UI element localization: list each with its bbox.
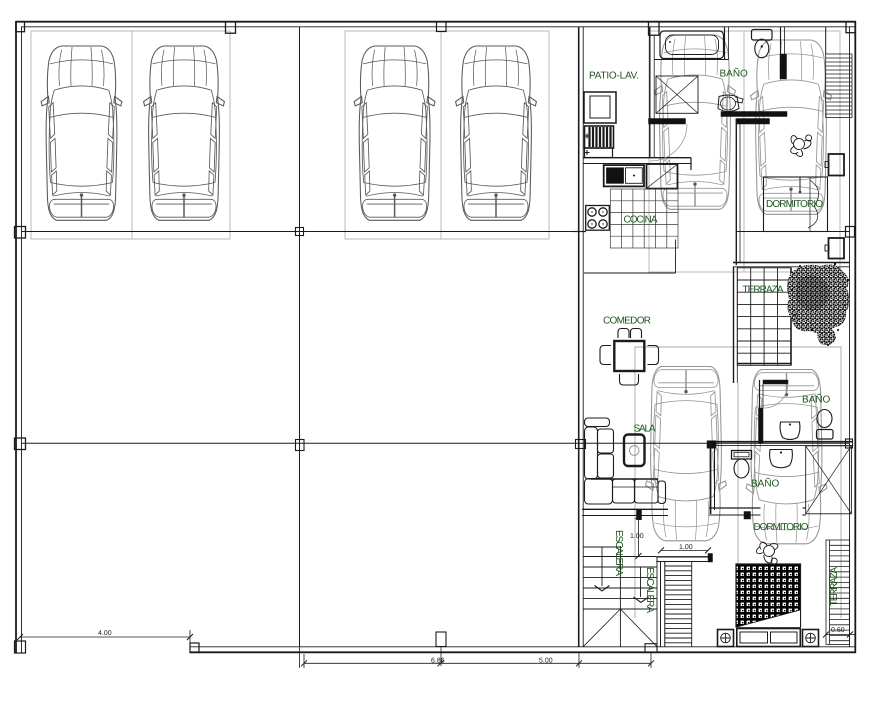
svg-text:PATIO-LAV.: PATIO-LAV. bbox=[589, 71, 639, 82]
svg-text:TERRAZA: TERRAZA bbox=[829, 567, 840, 606]
svg-text:4.00: 4.00 bbox=[98, 630, 112, 637]
svg-text:COMEDOR: COMEDOR bbox=[603, 316, 651, 327]
svg-text:BAÑO: BAÑO bbox=[751, 478, 780, 490]
svg-text:TERRAZA: TERRAZA bbox=[743, 285, 784, 296]
svg-text:6.86: 6.86 bbox=[431, 658, 445, 665]
svg-text:0.60: 0.60 bbox=[831, 627, 845, 634]
svg-text:DORMITORIO: DORMITORIO bbox=[754, 522, 809, 533]
svg-text:ESCALERA: ESCALERA bbox=[644, 567, 655, 613]
svg-text:BAÑO: BAÑO bbox=[802, 394, 831, 406]
svg-text:SALA: SALA bbox=[634, 424, 656, 435]
svg-text:BAÑO: BAÑO bbox=[720, 68, 749, 80]
svg-text:COCINA: COCINA bbox=[624, 215, 658, 226]
svg-text:1.00: 1.00 bbox=[630, 533, 644, 540]
svg-text:5.00: 5.00 bbox=[539, 658, 553, 665]
svg-text:1.00: 1.00 bbox=[679, 544, 693, 551]
svg-text:ESCALERA: ESCALERA bbox=[613, 530, 624, 576]
svg-text:DORMITORIO: DORMITORIO bbox=[766, 199, 823, 210]
